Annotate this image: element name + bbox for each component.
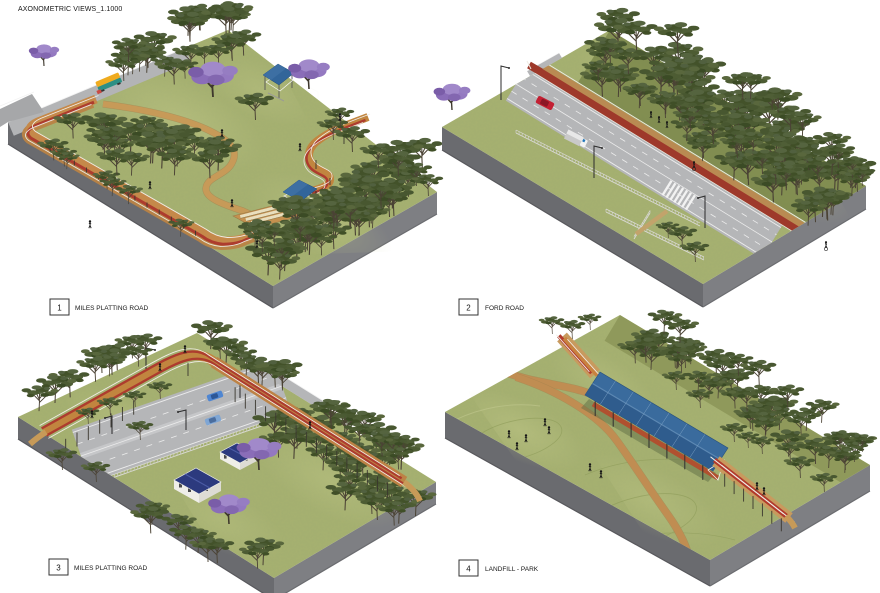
svg-text:AXONOMETRIC VIEWS_1.1000: AXONOMETRIC VIEWS_1.1000 <box>18 6 122 13</box>
svg-text:2: 2 <box>466 304 471 313</box>
svg-text:1: 1 <box>57 304 62 313</box>
svg-text:LANDFILL - PARK: LANDFILL - PARK <box>485 566 539 573</box>
svg-text:4: 4 <box>466 565 471 574</box>
svg-text:MILES PLATTING ROAD: MILES PLATTING ROAD <box>74 565 148 572</box>
svg-text:MILES PLATTING ROAD: MILES PLATTING ROAD <box>75 305 149 312</box>
svg-text:3: 3 <box>56 564 61 573</box>
svg-text:FORD ROAD: FORD ROAD <box>485 305 524 312</box>
